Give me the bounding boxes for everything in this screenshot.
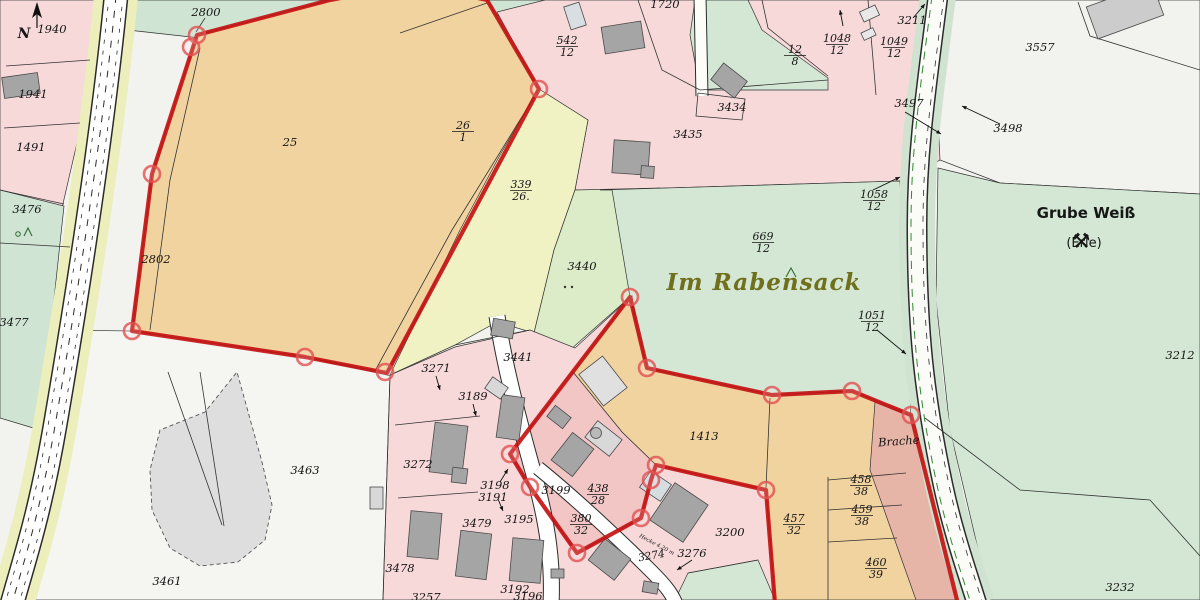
map-label-3478: 3478 [385,561,414,575]
map-label-1720: 1720 [650,0,679,11]
map-label-1941: 1941 [18,87,47,101]
selection-vertex[interactable] [764,387,780,403]
map-label-3272: 3272 [403,457,432,471]
cadastral-map-canvas[interactable]: ⚒2800N1940194114913476347728022517203434… [0,0,1200,600]
svg-text:26.: 26. [511,190,530,203]
selection-vertex[interactable] [903,407,919,423]
region-white-3557 [935,0,1200,194]
map-label--erle-: (Erle) [1066,236,1101,251]
selection-vertex[interactable] [758,482,774,498]
svg-text:12: 12 [756,242,770,255]
map-label-n: N [17,26,32,42]
svg-text:12: 12 [560,46,574,59]
svg-text:39: 39 [869,568,883,581]
map-label-3232: 3232 [1105,580,1134,594]
svg-text:12: 12 [830,44,844,57]
building [642,581,659,594]
building [455,530,491,579]
selection-vertex[interactable] [502,446,518,462]
map-label-3189: 3189 [458,389,487,403]
map-label-25: 25 [282,135,298,149]
building [491,318,516,339]
map-label-3557: 3557 [1025,40,1055,54]
svg-text:38: 38 [854,485,868,498]
selection-vertex[interactable] [648,457,664,473]
map-label-3211: 3211 [897,13,926,27]
map-label-1940: 1940 [37,22,66,36]
map-label-2802: 2802 [140,252,170,266]
map-label-3498: 3498 [993,121,1022,135]
map-label-3461: 3461 [152,574,181,588]
map-label-3497: 3497 [894,96,924,110]
svg-text:12: 12 [887,47,901,60]
svg-text:32: 32 [574,524,588,537]
road-lane-3434 [700,0,702,96]
map-label-3212: 3212 [1165,348,1194,362]
selection-vertex[interactable] [639,360,655,376]
selection-vertex[interactable] [522,479,538,495]
map-label-brache: Brache [877,433,921,450]
selection-vertex[interactable] [297,349,313,365]
map-label-1413: 1413 [689,429,718,443]
svg-text:28: 28 [590,494,605,507]
selection-vertex[interactable] [633,510,649,526]
selection-vertex[interactable] [622,289,638,305]
map-label-grube-wei-: Grube Weiß [1037,204,1136,222]
svg-text:12: 12 [865,321,879,334]
map-label-3195: 3195 [504,512,533,526]
map-label-3463: 3463 [290,463,319,477]
map-label-1491: 1491 [16,140,45,154]
map-label-3191: 3191 [478,490,507,504]
selection-vertex[interactable] [844,383,860,399]
svg-text:1: 1 [460,131,467,144]
selection-vertex[interactable] [531,81,547,97]
map-label-3440: 3440 [567,259,596,273]
map-label-3441: 3441 [503,350,532,364]
building [429,422,468,476]
building [370,487,383,509]
map-label-2800: 2800 [190,5,220,19]
map-label-3257: 3257 [411,590,441,600]
map-label-3271: 3271 [421,361,450,375]
map-label-3196: 3196 [513,589,542,600]
map-label-3477: 3477 [0,315,29,329]
selection-vertex[interactable] [643,472,659,488]
map-label-3434: 3434 [717,100,746,114]
building [451,467,468,484]
building [641,166,655,179]
selection-vertex[interactable] [124,323,140,339]
building [551,569,564,578]
svg-text:8: 8 [792,55,799,68]
building [601,21,645,54]
building-round [591,428,602,439]
svg-text:38: 38 [855,515,869,528]
selection-vertex[interactable] [183,39,199,55]
map-label-3476: 3476 [12,202,41,216]
svg-text:12: 12 [867,200,881,213]
map-label-3435: 3435 [673,127,702,141]
selection-vertex[interactable] [377,364,393,380]
map-label-3479: 3479 [462,516,491,530]
map-label-3199: 3199 [541,483,570,497]
selection-vertex[interactable] [144,166,160,182]
map-viewport[interactable]: ⚒2800N1940194114913476347728022517203434… [0,0,1200,600]
map-label-im-rabensack: Im Rabensack [666,269,862,296]
svg-text:32: 32 [787,524,801,537]
selection-vertex[interactable] [569,545,585,561]
building [407,511,442,560]
map-label-3200: 3200 [715,525,744,539]
map-label-3276: 3276 [677,546,706,560]
parcel-fraction-339: 33926. [510,178,532,203]
building [509,538,544,584]
region-green-east [936,168,1200,600]
